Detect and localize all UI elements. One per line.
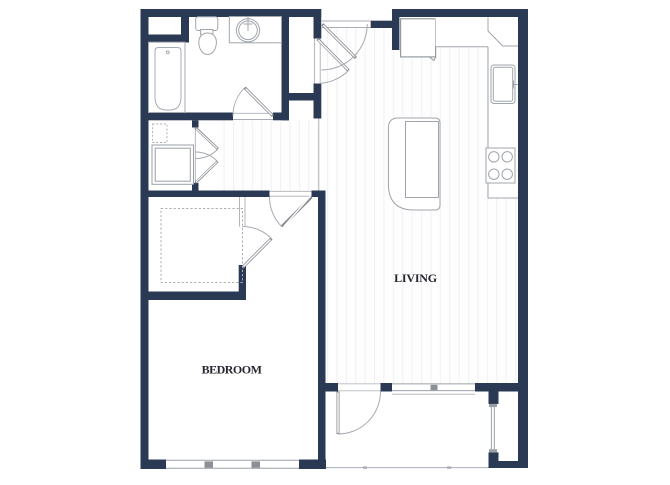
svg-text:BEDROOM: BEDROOM — [202, 362, 262, 376]
svg-text:LIVING: LIVING — [394, 271, 437, 285]
